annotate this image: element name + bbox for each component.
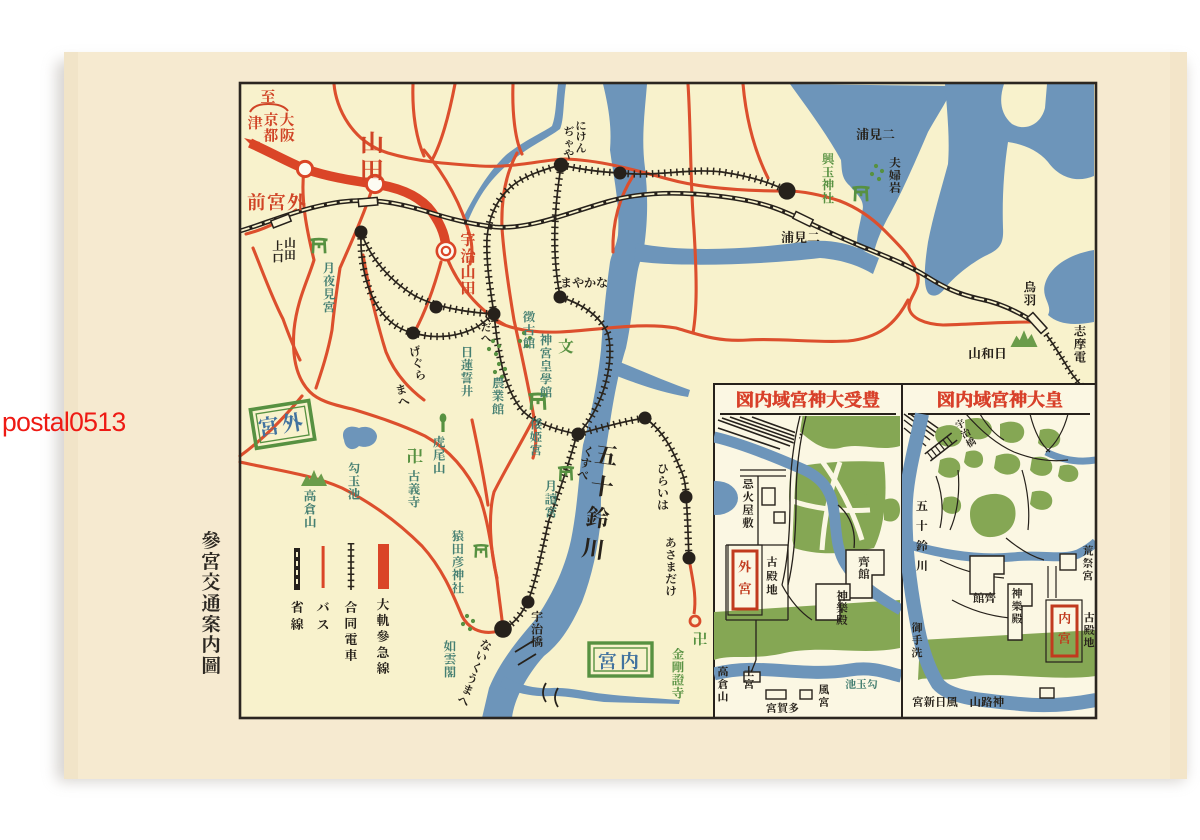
svg-text:參宮交通案内圖: 參宮交通案内圖 — [201, 526, 221, 679]
svg-text:夫婦岩: 夫婦岩 — [888, 154, 901, 196]
svg-text:徵古館: 徵古館 — [523, 308, 536, 352]
svg-text:卍: 卍 — [407, 442, 425, 467]
svg-text:宮新日風 山路神: 宮新日風 山路神 — [912, 694, 1004, 710]
svg-text:倭姫宮: 倭姫宮 — [530, 415, 543, 459]
svg-text:虎尾山: 虎尾山 — [433, 433, 446, 477]
svg-text:にけん: にけん — [576, 117, 587, 156]
svg-text:古殿地: 古殿地 — [1083, 609, 1096, 650]
svg-text:山田: 山田 — [360, 123, 384, 185]
svg-text:宮内: 宮内 — [598, 647, 642, 674]
svg-text:大阪: 大阪 — [279, 109, 295, 146]
svg-text:勾玉池: 勾玉池 — [348, 459, 361, 503]
svg-text:忌火屋敷: 忌火屋敷 — [742, 476, 754, 531]
svg-text:京都: 京都 — [263, 109, 279, 146]
svg-text:前宮外: 前宮外 — [247, 188, 307, 215]
svg-text:如雲閣: 如雲閣 — [444, 637, 457, 681]
svg-text:図内域宮神大受豊: 図内域宮神大受豊 — [736, 386, 880, 412]
svg-text:高倉山: 高倉山 — [304, 487, 317, 531]
svg-text:だへ: だへ — [481, 320, 492, 346]
svg-text:猿田彦神社: 猿田彦神社 — [451, 527, 465, 597]
svg-text:合同電車: 合同電車 — [344, 597, 357, 664]
svg-text:興玉神社: 興玉神社 — [821, 150, 835, 207]
svg-text:高倉山: 高倉山 — [718, 663, 729, 704]
svg-text:館齊: 館齊 — [972, 590, 996, 606]
svg-text:宇治山田: 宇治山田 — [460, 228, 476, 298]
svg-text:卍: 卍 — [692, 628, 707, 649]
svg-text:postal0513: postal0513 — [2, 407, 126, 437]
svg-text:文: 文 — [558, 334, 574, 357]
svg-text:古義寺: 古義寺 — [408, 467, 421, 511]
svg-text:月讀宮: 月讀宮 — [545, 477, 558, 521]
svg-text:風宮: 風宮 — [818, 681, 830, 710]
svg-text:宮賀多: 宮賀多 — [765, 700, 799, 716]
svg-text:ぢゃや: ぢゃや — [564, 123, 575, 162]
svg-text:神樂殿: 神樂殿 — [835, 588, 848, 628]
svg-text:志摩電: 志摩電 — [1074, 322, 1087, 366]
svg-text:山和日: 山和日 — [968, 343, 1007, 362]
svg-text:津: 津 — [247, 112, 263, 133]
svg-text:図内域宮神大皇: 図内域宮神大皇 — [937, 386, 1063, 412]
svg-text:土宮: 土宮 — [743, 663, 755, 692]
svg-text:池玉勾: 池玉勾 — [845, 676, 878, 692]
svg-text:神樂殿: 神樂殿 — [1011, 585, 1024, 626]
svg-text:宇治橋: 宇治橋 — [530, 608, 543, 650]
svg-text:内宮: 内宮 — [1058, 608, 1071, 647]
svg-text:齊館: 齊館 — [857, 554, 870, 582]
svg-text:上口: 上口 — [272, 238, 284, 266]
svg-text:あさまだけ: あさまだけ — [665, 535, 677, 599]
svg-text:月夜見宮: 月夜見宮 — [323, 259, 336, 316]
svg-text:神宮皇學館: 神宮皇學館 — [540, 331, 553, 401]
svg-text:日蓮誓井: 日蓮誓井 — [461, 343, 474, 400]
svg-text:農業館: 農業館 — [492, 374, 505, 418]
svg-text:浦見二: 浦見二 — [781, 227, 820, 246]
svg-text:山田: 山田 — [284, 235, 296, 263]
svg-text:古殿地: 古殿地 — [765, 554, 778, 598]
svg-text:鳥羽: 鳥羽 — [1024, 278, 1037, 309]
svg-text:御手洗: 御手洗 — [911, 619, 924, 660]
svg-text:バス: バス — [316, 597, 329, 633]
svg-text:大軌參急線: 大軌參急線 — [376, 594, 390, 677]
svg-text:省線: 省線 — [290, 597, 304, 633]
svg-text:浦見二: 浦見二 — [856, 124, 895, 143]
svg-text:荒祭宮: 荒祭宮 — [1082, 542, 1094, 583]
svg-text:まやかな: まやかな — [560, 274, 608, 291]
svg-text:金剛證寺: 金剛證寺 — [672, 645, 685, 702]
svg-text:ひらいは: ひらいは — [657, 461, 669, 513]
